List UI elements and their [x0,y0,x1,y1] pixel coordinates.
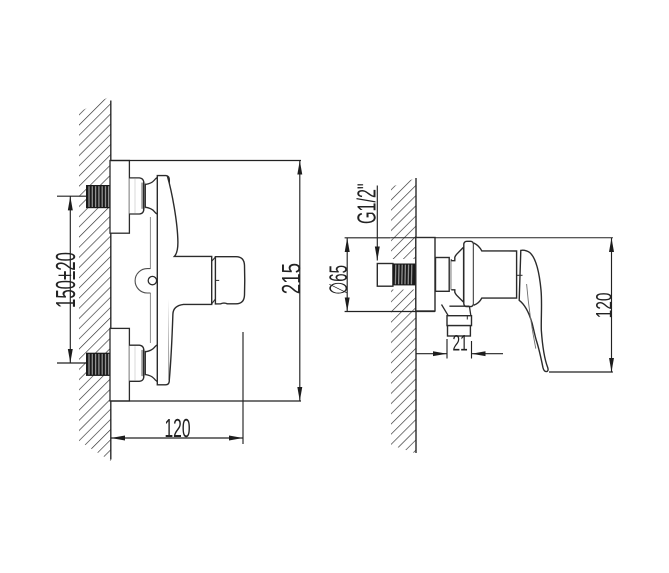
svg-text:215: 215 [276,263,306,294]
svg-text:G1/2": G1/2" [351,183,381,224]
svg-text:120: 120 [593,293,617,319]
svg-text:21: 21 [453,330,468,355]
svg-text:120: 120 [165,414,191,443]
svg-text:150±20: 150±20 [49,252,81,308]
svg-text:∅65: ∅65 [325,265,353,295]
